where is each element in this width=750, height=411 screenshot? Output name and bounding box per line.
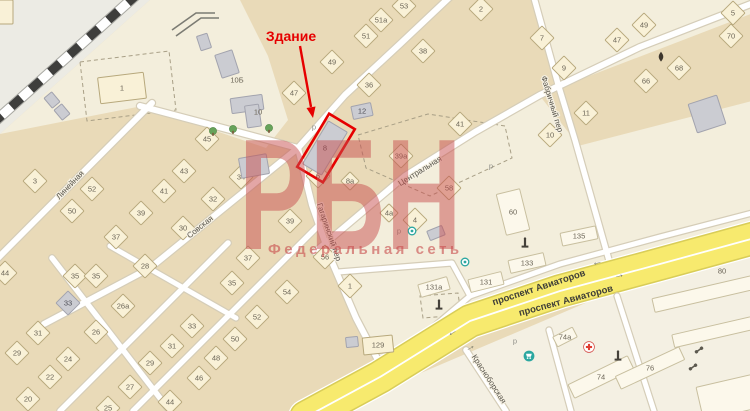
building-label: 49 (640, 21, 648, 30)
building-label: 39 (286, 217, 294, 226)
building-label: 32 (209, 195, 217, 204)
building-label: 39а (395, 152, 408, 161)
building (346, 336, 359, 347)
building-label: 29 (13, 349, 21, 358)
building-label: 26а (117, 302, 130, 311)
building-label: 41 (456, 120, 464, 129)
building-label: 28 (141, 262, 149, 271)
building-label: 39 (137, 209, 145, 218)
building-label: 2 (479, 5, 483, 14)
building-label: 37 (112, 233, 120, 242)
building-label: 7 (540, 34, 544, 43)
building-label: 31 (34, 329, 42, 338)
building-label: 5 (731, 9, 735, 18)
building-label: 66 (642, 77, 650, 86)
building-label: 131а (426, 283, 444, 292)
building-label: 4а (385, 209, 394, 218)
parking-mark: р (397, 227, 401, 236)
building-label: 47 (290, 89, 298, 98)
cart-icon (524, 351, 535, 362)
map-view[interactable]: 5351а51494736384125794749706668111039а58… (0, 0, 750, 411)
building-label: 51 (362, 32, 370, 41)
building (238, 154, 269, 179)
building-label: 50 (231, 335, 239, 344)
building-label: 1 (120, 84, 124, 93)
building-label: 44 (166, 398, 174, 407)
building-label: 4 (413, 216, 417, 225)
building-label: 20 (24, 395, 32, 404)
building-label: 56 (321, 253, 329, 262)
building-label: 135 (573, 232, 586, 241)
building-label: 60 (509, 208, 517, 217)
building-label: 48 (212, 354, 220, 363)
stop-icon (408, 227, 416, 235)
map-canvas[interactable]: 5351а51494736384125794749706668111039а58… (0, 0, 750, 411)
stop-icon (461, 258, 469, 266)
building-label: 10 (546, 131, 554, 140)
building-label: 9 (562, 64, 566, 73)
building-label: 74 (597, 373, 605, 382)
building-label: 26 (92, 328, 100, 337)
parking-mark: р (312, 123, 316, 132)
building-label: 80 (718, 267, 726, 276)
building-label: 131 (480, 278, 493, 287)
building-label: 49 (328, 58, 336, 67)
building-label: 129 (372, 341, 385, 350)
building-label: 53 (400, 2, 408, 11)
building-label: 33 (188, 322, 196, 331)
building (0, 0, 13, 24)
cross-icon (584, 342, 595, 353)
building-label: 33 (64, 299, 72, 308)
building-label: 38 (419, 47, 427, 56)
parking-mark: р (489, 162, 493, 171)
parking-mark: р (513, 337, 517, 346)
annotation-label: Здание (266, 28, 317, 44)
building-label: 36 (365, 81, 373, 90)
building-label: 52 (253, 313, 261, 322)
building-label: 25 (104, 404, 112, 411)
building-label: 35 (71, 272, 79, 281)
building-label: 10 (254, 108, 262, 117)
building-label: 35 (92, 272, 100, 281)
building-label: 35 (228, 279, 236, 288)
building-label: 52 (88, 185, 96, 194)
building-label: 46 (195, 374, 203, 383)
building-label: 44 (1, 269, 9, 278)
building-label: 29 (146, 359, 154, 368)
building-label: 30 (179, 224, 187, 233)
building-label: 76 (646, 364, 654, 373)
building-label: 31 (168, 342, 176, 351)
building-label: 58 (445, 184, 453, 193)
building-label: 8а (346, 177, 355, 186)
building-label: 43 (180, 167, 188, 176)
building-label: 24 (64, 355, 72, 364)
building-label: 1 (348, 282, 352, 291)
building-label: 133 (521, 259, 534, 268)
building-label: 47 (613, 36, 621, 45)
building-label: 12 (358, 107, 366, 116)
building-label: 74а (559, 333, 572, 342)
building-label: 41 (160, 187, 168, 196)
building-label: 68 (675, 64, 683, 73)
building-label: 22 (46, 373, 54, 382)
building-label: 54 (283, 288, 291, 297)
building-label: 27 (126, 383, 134, 392)
building-label: 45 (203, 135, 211, 144)
building-label: 51а (375, 16, 388, 25)
building-label: 37 (244, 254, 252, 263)
building-label: 10Б (230, 76, 243, 85)
building-label: 50 (68, 207, 76, 216)
building-label: 70 (727, 32, 735, 41)
building-label: 8 (323, 144, 327, 153)
building-label: 3 (33, 177, 37, 186)
building-label: 11 (582, 109, 590, 118)
